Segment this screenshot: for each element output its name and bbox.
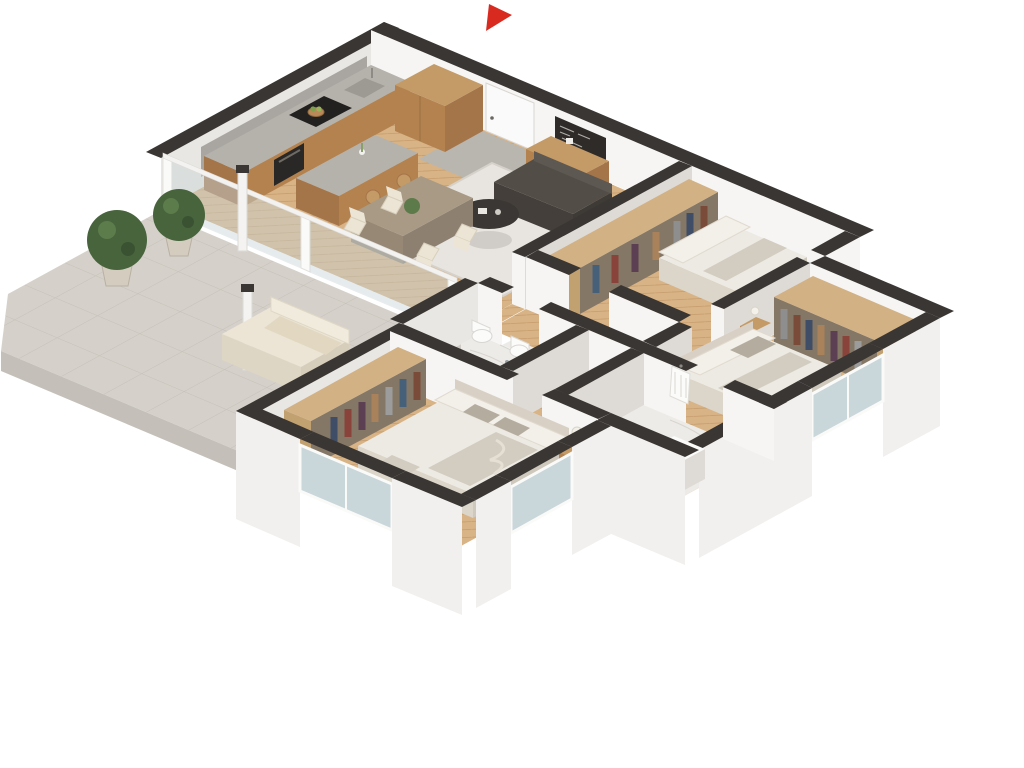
column-1 bbox=[238, 171, 247, 251]
hook-icon bbox=[679, 364, 682, 367]
floor-plan-render bbox=[0, 0, 1024, 768]
fruit-bowl bbox=[308, 108, 324, 117]
topiary-1-shade bbox=[182, 216, 194, 228]
topiary-2-shade bbox=[121, 242, 135, 256]
glass-post-2 bbox=[301, 216, 310, 272]
master-e-face-b bbox=[476, 481, 511, 608]
toilet bbox=[472, 330, 492, 343]
entrance-arrow-icon bbox=[486, 4, 512, 31]
lamp2-icon bbox=[751, 307, 759, 315]
topiary-1 bbox=[153, 189, 205, 241]
table-deco-book bbox=[478, 208, 487, 214]
column-1-cap bbox=[236, 165, 249, 173]
iw1-end-face bbox=[512, 252, 525, 309]
topiary-2 bbox=[87, 210, 147, 270]
fruit-icon-2 bbox=[316, 106, 321, 111]
master-e-face-a bbox=[572, 426, 611, 555]
fruit-icon bbox=[310, 106, 315, 111]
espresso-machine-icon bbox=[566, 138, 573, 144]
table-centerpiece-plant bbox=[404, 198, 420, 214]
table-deco-cup bbox=[495, 209, 501, 215]
topiary-1-highlight bbox=[163, 198, 179, 214]
topiary-2-highlight bbox=[98, 221, 116, 239]
door-handle-icon bbox=[490, 116, 494, 120]
floor-plan-page bbox=[0, 0, 1024, 768]
column-2-cap bbox=[241, 284, 254, 292]
